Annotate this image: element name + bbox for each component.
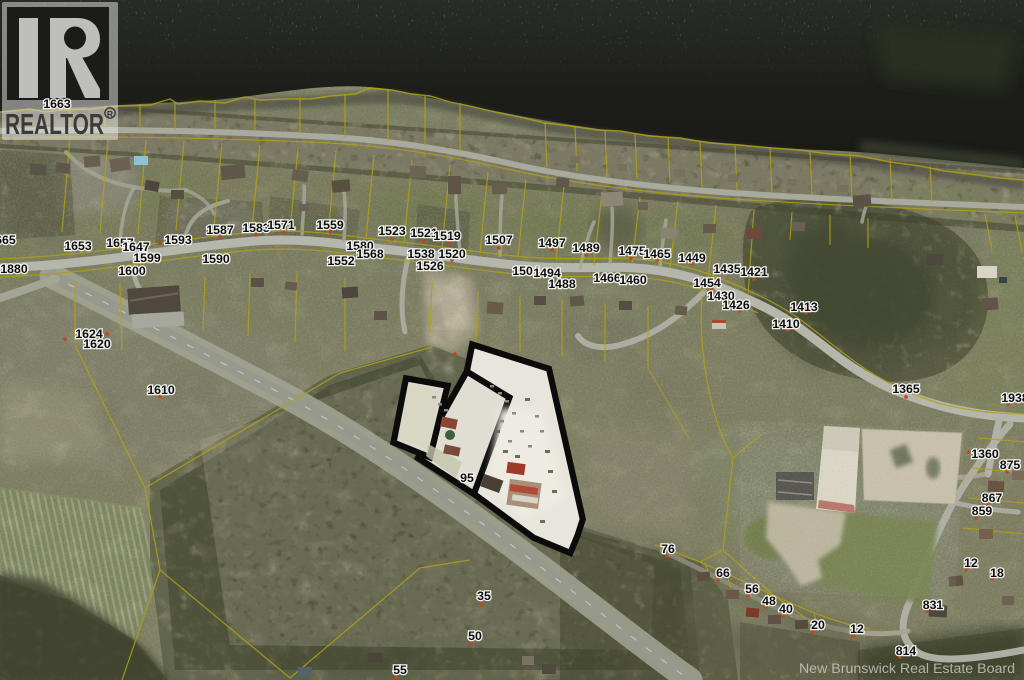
svg-text:1497: 1497 bbox=[538, 236, 566, 250]
svg-text:1426: 1426 bbox=[722, 298, 750, 312]
svg-text:REALTOR: REALTOR bbox=[5, 109, 104, 141]
svg-text:12: 12 bbox=[964, 556, 978, 570]
svg-text:859: 859 bbox=[972, 504, 993, 518]
svg-text:1413: 1413 bbox=[790, 300, 818, 314]
svg-text:1559: 1559 bbox=[316, 218, 344, 232]
svg-text:1610: 1610 bbox=[147, 383, 175, 397]
svg-text:1880: 1880 bbox=[0, 262, 28, 276]
svg-text:18: 18 bbox=[990, 566, 1004, 580]
svg-text:1620: 1620 bbox=[83, 337, 111, 351]
svg-text:1466: 1466 bbox=[593, 271, 621, 285]
svg-text:12: 12 bbox=[850, 622, 864, 636]
svg-text:95: 95 bbox=[460, 471, 474, 485]
svg-text:1465: 1465 bbox=[643, 247, 671, 261]
svg-text:1599: 1599 bbox=[133, 251, 161, 265]
svg-text:1590: 1590 bbox=[202, 252, 230, 266]
svg-text:1449: 1449 bbox=[678, 251, 706, 265]
svg-text:875: 875 bbox=[1000, 458, 1021, 472]
svg-text:R: R bbox=[107, 109, 113, 119]
svg-text:1410: 1410 bbox=[772, 317, 800, 331]
svg-text:1552: 1552 bbox=[327, 254, 355, 268]
svg-text:1583: 1583 bbox=[242, 221, 270, 235]
svg-text:867: 867 bbox=[982, 491, 1003, 505]
svg-text:1587: 1587 bbox=[206, 223, 234, 237]
svg-text:1489: 1489 bbox=[572, 241, 600, 255]
svg-text:20: 20 bbox=[811, 618, 825, 632]
svg-text:814: 814 bbox=[896, 644, 917, 658]
svg-text:1421: 1421 bbox=[740, 265, 768, 279]
svg-text:1507: 1507 bbox=[485, 233, 513, 247]
svg-text:76: 76 bbox=[661, 542, 675, 556]
svg-text:1571: 1571 bbox=[267, 218, 295, 232]
svg-text:1488: 1488 bbox=[548, 277, 576, 291]
svg-text:1523: 1523 bbox=[378, 224, 406, 238]
svg-text:1600: 1600 bbox=[118, 264, 146, 278]
svg-text:50: 50 bbox=[468, 629, 482, 643]
svg-text:1665: 1665 bbox=[0, 233, 16, 247]
svg-text:40: 40 bbox=[779, 602, 793, 616]
svg-text:1593: 1593 bbox=[164, 233, 192, 247]
svg-text:1460: 1460 bbox=[619, 273, 647, 287]
svg-text:831: 831 bbox=[923, 598, 944, 612]
svg-text:1475: 1475 bbox=[618, 244, 646, 258]
svg-text:New Brunswick Real Estate Boar: New Brunswick Real Estate Board bbox=[799, 661, 1015, 677]
svg-text:66: 66 bbox=[716, 566, 730, 580]
svg-text:1526: 1526 bbox=[416, 259, 444, 273]
svg-text:1938: 1938 bbox=[1001, 391, 1024, 405]
svg-text:1519: 1519 bbox=[433, 229, 461, 243]
svg-text:1435: 1435 bbox=[713, 262, 741, 276]
svg-text:1454: 1454 bbox=[693, 276, 721, 290]
svg-text:1653: 1653 bbox=[64, 239, 92, 253]
svg-text:1365: 1365 bbox=[892, 382, 920, 396]
svg-text:35: 35 bbox=[477, 589, 491, 603]
svg-text:56: 56 bbox=[745, 582, 759, 596]
svg-text:1360: 1360 bbox=[971, 447, 999, 461]
svg-text:55: 55 bbox=[393, 663, 407, 677]
svg-text:1568: 1568 bbox=[356, 247, 384, 261]
svg-text:48: 48 bbox=[762, 594, 776, 608]
